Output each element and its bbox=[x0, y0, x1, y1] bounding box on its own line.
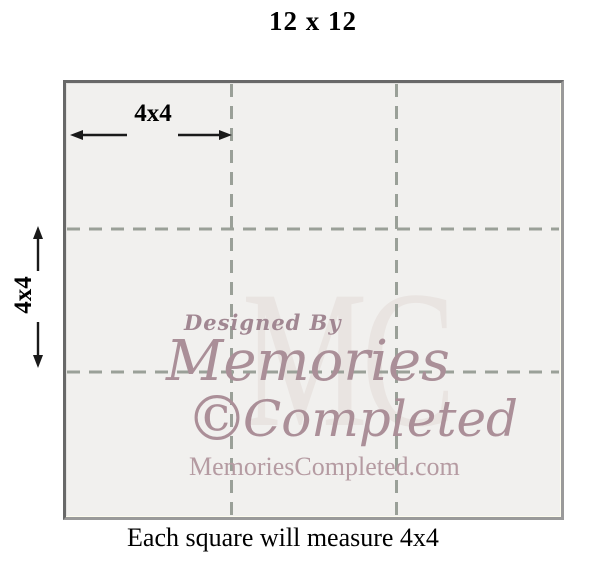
height-arrowhead-down-icon bbox=[33, 355, 43, 368]
width-arrow bbox=[70, 130, 232, 140]
cell-height-label: 4x4 bbox=[2, 260, 46, 330]
width-arrowhead-left-icon bbox=[70, 130, 83, 140]
page: 12 x 12 MC Designed By Memories © Comple… bbox=[0, 0, 600, 567]
watermark-completed: Completed bbox=[243, 394, 518, 444]
caption: Each square will measure 4x4 bbox=[0, 523, 566, 553]
watermark-url: MemoriesCompleted.com bbox=[189, 452, 460, 482]
copyright-icon: © bbox=[186, 388, 248, 450]
cell-width-label: 4x4 bbox=[124, 100, 182, 128]
height-arrowhead-up-icon bbox=[33, 226, 43, 239]
